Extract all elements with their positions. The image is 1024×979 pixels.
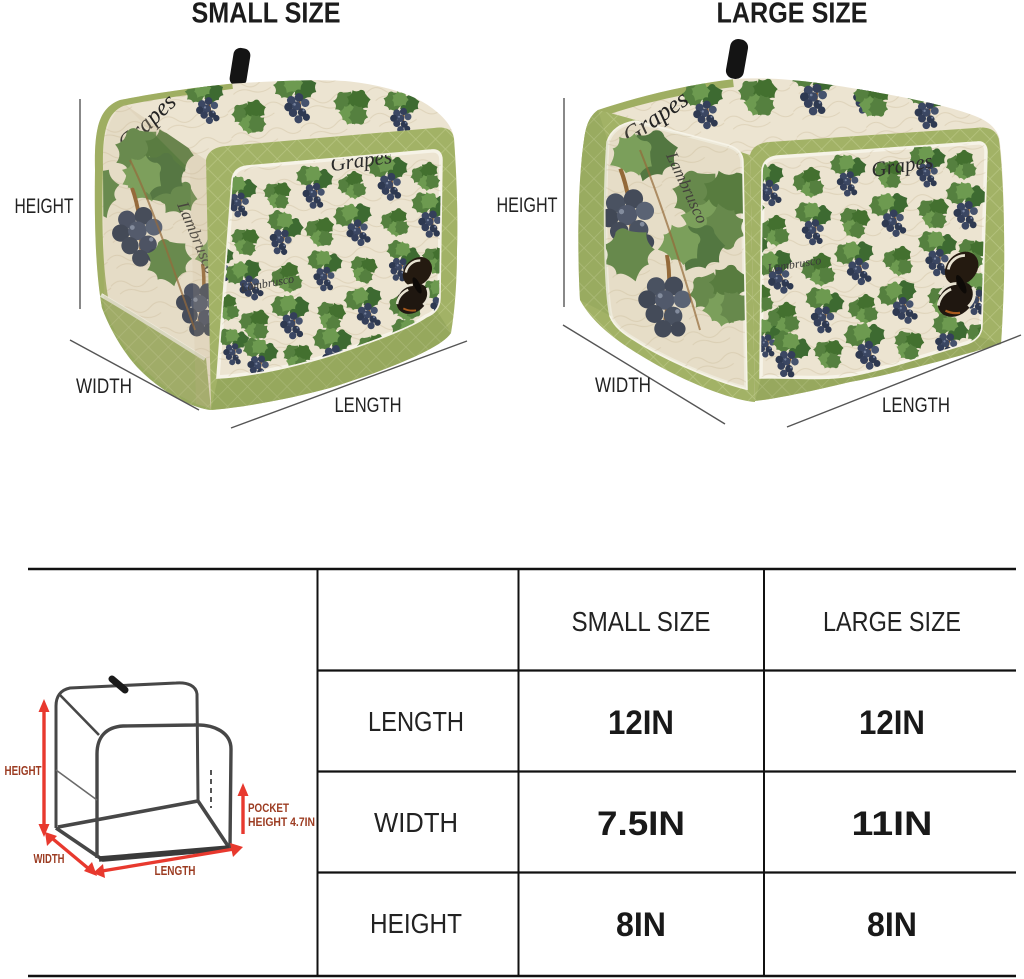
svg-text:SMALL SIZE: SMALL SIZE <box>192 0 341 30</box>
svg-text:8IN: 8IN <box>616 906 666 944</box>
svg-text:SMALL SIZE: SMALL SIZE <box>572 606 711 637</box>
svg-text:WIDTH: WIDTH <box>595 374 651 397</box>
svg-text:12IN: 12IN <box>608 704 674 742</box>
svg-text:WIDTH: WIDTH <box>76 375 132 398</box>
svg-text:HEIGHT 4.7IN: HEIGHT 4.7IN <box>248 815 315 829</box>
svg-text:8IN: 8IN <box>867 906 917 944</box>
svg-text:LENGTH: LENGTH <box>882 394 950 417</box>
svg-text:LARGE SIZE: LARGE SIZE <box>823 606 961 637</box>
svg-text:HEIGHT: HEIGHT <box>497 194 558 217</box>
svg-text:HEIGHT: HEIGHT <box>15 195 74 218</box>
svg-text:WIDTH: WIDTH <box>374 807 458 838</box>
svg-text:HEIGHT: HEIGHT <box>370 908 462 939</box>
svg-text:LARGE SIZE: LARGE SIZE <box>717 0 868 30</box>
svg-text:LENGTH: LENGTH <box>155 863 196 878</box>
svg-text:7.5IN: 7.5IN <box>597 805 685 843</box>
svg-text:LENGTH: LENGTH <box>335 394 402 417</box>
svg-text:HEIGHT: HEIGHT <box>5 763 42 778</box>
svg-text:12IN: 12IN <box>859 704 925 742</box>
svg-text:WIDTH: WIDTH <box>34 851 65 866</box>
svg-text:11IN: 11IN <box>852 805 933 843</box>
svg-text:POCKET: POCKET <box>248 801 290 815</box>
svg-text:LENGTH: LENGTH <box>368 706 464 737</box>
